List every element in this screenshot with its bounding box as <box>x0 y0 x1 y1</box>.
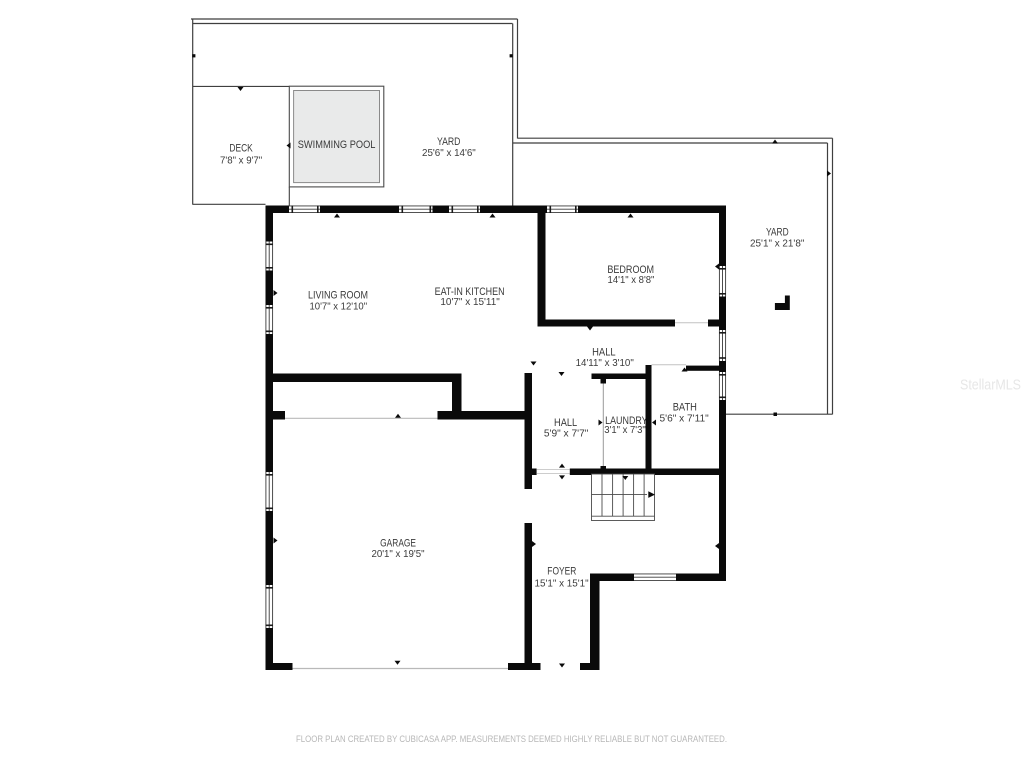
svg-text:3'1" x 7'3": 3'1" x 7'3" <box>604 425 646 436</box>
svg-text:7'8" x 9'7": 7'8" x 9'7" <box>220 155 262 166</box>
svg-text:10'7" x 12'10": 10'7" x 12'10" <box>310 302 368 313</box>
svg-text:14'1" x 8'8": 14'1" x 8'8" <box>608 275 655 286</box>
svg-text:LIVING ROOM: LIVING ROOM <box>308 290 368 302</box>
svg-text:SWIMMING POOL: SWIMMING POOL <box>298 139 376 151</box>
svg-text:25'1" x 21'8": 25'1" x 21'8" <box>750 238 805 249</box>
svg-text:5'9" x 7'7": 5'9" x 7'7" <box>544 429 589 440</box>
svg-text:HALL: HALL <box>554 417 577 429</box>
svg-text:FOYER: FOYER <box>547 566 576 578</box>
svg-text:GARAGE: GARAGE <box>380 537 416 549</box>
svg-text:HALL: HALL <box>592 347 616 359</box>
svg-text:25'6" x 14'6": 25'6" x 14'6" <box>422 148 476 159</box>
svg-text:StellarMLS: StellarMLS <box>960 378 1021 394</box>
svg-text:DECK: DECK <box>229 143 252 155</box>
svg-text:15'1" x 15'1": 15'1" x 15'1" <box>535 578 589 589</box>
svg-text:5'6" x 7'11": 5'6" x 7'11" <box>660 414 710 425</box>
svg-text:10'7" x 15'11": 10'7" x 15'11" <box>440 297 500 308</box>
svg-text:14'11" x 3'10": 14'11" x 3'10" <box>576 358 634 369</box>
svg-text:BATH: BATH <box>673 402 697 414</box>
svg-text:20'1" x 19'5": 20'1" x 19'5" <box>371 549 424 560</box>
svg-text:FLOOR PLAN CREATED BY CUBICASA: FLOOR PLAN CREATED BY CUBICASA APP. MEAS… <box>296 734 727 744</box>
svg-text:YARD: YARD <box>766 227 789 239</box>
svg-text:YARD: YARD <box>437 136 461 148</box>
